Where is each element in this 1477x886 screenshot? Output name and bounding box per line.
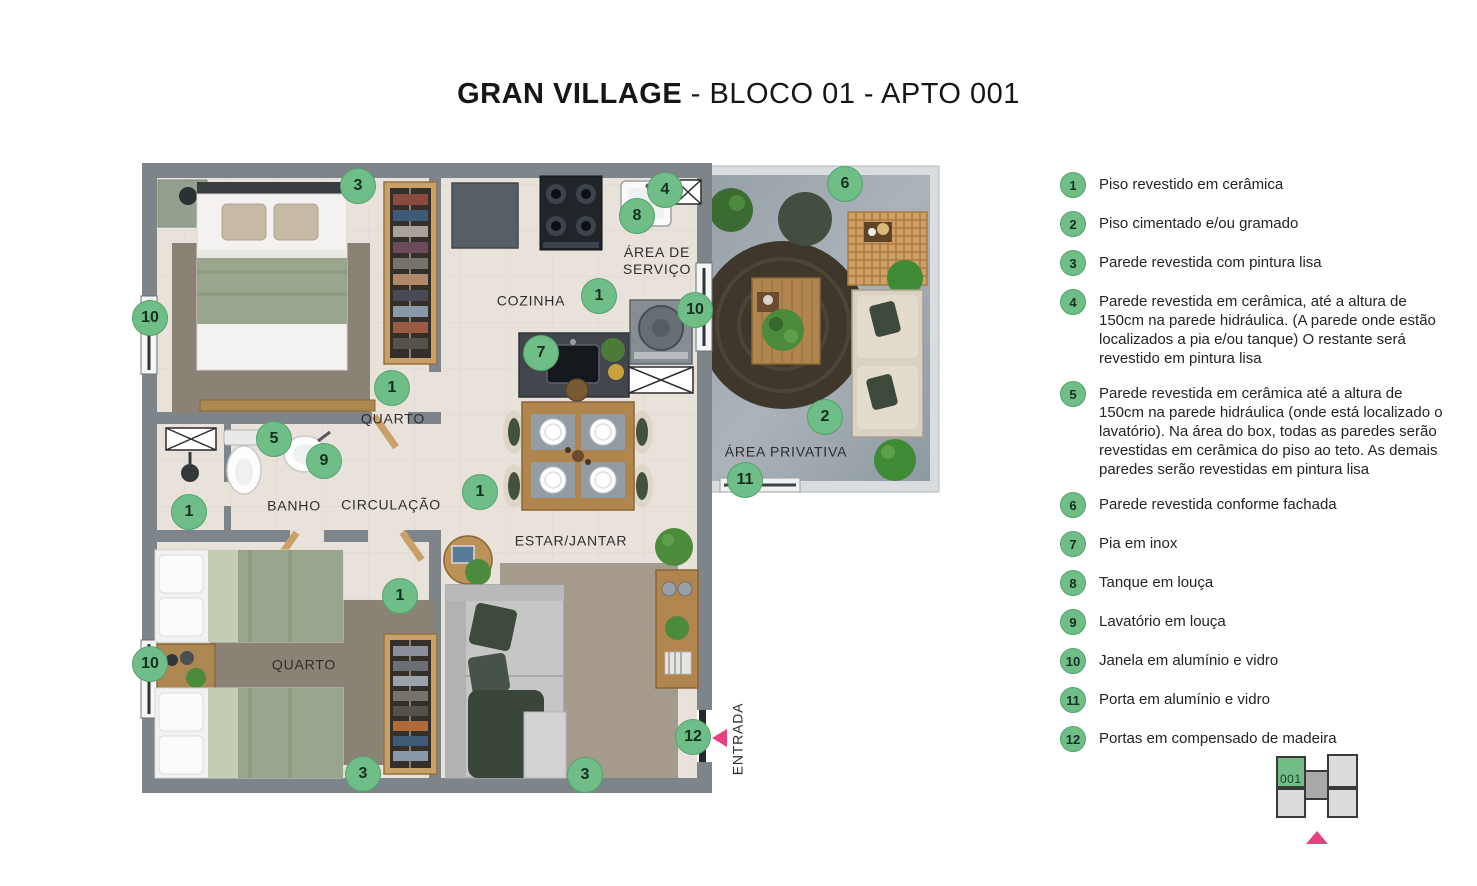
legend-item: 11 Porta em alumínio e vidro xyxy=(1060,690,1476,713)
shaft-hatch xyxy=(629,367,693,393)
legend-number-badge: 10 xyxy=(1060,648,1086,674)
patio-table xyxy=(752,278,820,364)
legend-item-text: Portas em compensado de madeira xyxy=(1099,729,1337,748)
plant xyxy=(874,439,916,481)
legend-item: 6 Parede revestida conforme fachada xyxy=(1060,495,1476,518)
page: GRAN VILLAGE - BLOCO 01 - APTO 001 xyxy=(0,0,1477,886)
plan-marker-10: 10 xyxy=(132,646,168,682)
legend-number-badge: 8 xyxy=(1060,570,1086,596)
minimap-unit xyxy=(1276,788,1306,818)
minimap-unit-label: 001 xyxy=(1280,772,1302,786)
minimap-unit xyxy=(1327,754,1358,788)
sideboard xyxy=(656,570,698,688)
pouf xyxy=(778,192,832,246)
legend-item: 3 Parede revestida com pintura lisa xyxy=(1060,253,1476,276)
shower-hatch xyxy=(166,428,216,450)
legend-item: 12 Portas em compensado de madeira xyxy=(1060,729,1476,752)
plan-marker-1: 1 xyxy=(374,370,410,406)
plan-marker-3: 3 xyxy=(345,756,381,792)
legend-number-badge: 6 xyxy=(1060,492,1086,518)
room-label-banho: BANHO xyxy=(267,498,321,515)
room-label-area-de-servico: ÁREA DE SERVIÇO xyxy=(609,244,705,278)
plant xyxy=(655,528,693,566)
legend-item: 10 Janela em alumínio e vidro xyxy=(1060,651,1476,674)
minimap-unit-001: 001 xyxy=(1276,756,1306,788)
legend-item: 2 Piso cimentado e/ou gramado xyxy=(1060,214,1476,237)
entrance-label: ENTRADA xyxy=(730,703,747,776)
room-label-cozinha: COZINHA xyxy=(497,293,566,310)
minimap-unit xyxy=(1327,788,1358,818)
plan-marker-10: 10 xyxy=(132,300,168,336)
minimap-orientation-arrow-icon xyxy=(1306,831,1328,844)
legend-number-badge: 9 xyxy=(1060,609,1086,635)
plan-marker-3: 3 xyxy=(567,757,603,793)
plan-marker-8: 8 xyxy=(619,198,655,234)
fruit-bowl xyxy=(566,379,588,401)
entrance-arrow-icon xyxy=(712,729,727,747)
room-label-quarto-2: QUARTO xyxy=(272,657,336,674)
plan-marker-11: 11 xyxy=(727,462,763,498)
dining-set xyxy=(503,402,653,510)
plan-marker-1: 1 xyxy=(462,474,498,510)
plant xyxy=(709,188,753,232)
plan-marker-4: 4 xyxy=(647,172,683,208)
legend-item-text: Parede revestida com pintura lisa xyxy=(1099,253,1322,272)
legend-item-text: Parede revestida em cerâmica, até a altu… xyxy=(1099,292,1451,368)
legend-item-text: Porta em alumínio e vidro xyxy=(1099,690,1270,709)
legend-item-text: Parede revestida em cerâmica até a altur… xyxy=(1099,384,1451,479)
legend: 1 Piso revestido em cerâmica 2 Piso cime… xyxy=(1060,175,1476,752)
wardrobe xyxy=(384,634,437,774)
twin-bed xyxy=(155,688,343,778)
legend-item: 5 Parede revestida em cerâmica até a alt… xyxy=(1060,384,1476,479)
plan-marker-1: 1 xyxy=(382,578,418,614)
sofa xyxy=(446,585,566,778)
plan-marker-7: 7 xyxy=(523,335,559,371)
legend-item-text: Piso revestido em cerâmica xyxy=(1099,175,1283,194)
legend-item-text: Janela em alumínio e vidro xyxy=(1099,651,1278,670)
plan-marker-6: 6 xyxy=(827,166,863,202)
legend-number-badge: 2 xyxy=(1060,211,1086,237)
legend-number-badge: 5 xyxy=(1060,381,1086,407)
legend-number-badge: 12 xyxy=(1060,726,1086,752)
legend-item: 8 Tanque em louça xyxy=(1060,573,1476,596)
plan-marker-1: 1 xyxy=(581,278,617,314)
legend-number-badge: 3 xyxy=(1060,250,1086,276)
legend-item-text: Piso cimentado e/ou gramado xyxy=(1099,214,1298,233)
room-label-quarto-1: QUARTO xyxy=(361,411,425,428)
shower-drain xyxy=(181,464,199,482)
legend-item: 9 Lavatório em louça xyxy=(1060,612,1476,635)
room-label-circulacao: CIRCULAÇÃO xyxy=(341,497,441,514)
legend-item: 4 Parede revestida em cerâmica, até a al… xyxy=(1060,292,1476,368)
legend-item-text: Pia em inox xyxy=(1099,534,1177,553)
plan-marker-1: 1 xyxy=(171,494,207,530)
side-table xyxy=(444,536,492,585)
room-label-estar-jantar: ESTAR/JANTAR xyxy=(515,533,628,550)
trellis xyxy=(848,212,927,296)
legend-item-text: Tanque em louça xyxy=(1099,573,1213,592)
stove xyxy=(540,176,602,250)
legend-number-badge: 4 xyxy=(1060,289,1086,315)
legend-item: 7 Pia em inox xyxy=(1060,534,1476,557)
legend-number-badge: 1 xyxy=(1060,172,1086,198)
twin-bed xyxy=(155,550,343,642)
legend-item-text: Lavatório em louça xyxy=(1099,612,1226,631)
plan-marker-12: 12 xyxy=(675,719,711,755)
patio-sofa xyxy=(852,290,923,437)
wardrobe xyxy=(384,182,437,364)
minimap-connector xyxy=(1303,770,1329,800)
plan-marker-9: 9 xyxy=(306,443,342,479)
legend-item-text: Parede revestida conforme fachada xyxy=(1099,495,1337,514)
plan-marker-10: 10 xyxy=(677,292,713,328)
legend-item: 1 Piso revestido em cerâmica xyxy=(1060,175,1476,198)
room-label-area-privativa: ÁREA PRIVATIVA xyxy=(725,444,847,461)
legend-number-badge: 7 xyxy=(1060,531,1086,557)
block-minimap: 001 xyxy=(1276,754,1371,849)
legend-number-badge: 11 xyxy=(1060,687,1086,713)
plan-marker-2: 2 xyxy=(807,399,843,435)
plan-marker-3: 3 xyxy=(340,168,376,204)
plan-marker-5: 5 xyxy=(256,421,292,457)
